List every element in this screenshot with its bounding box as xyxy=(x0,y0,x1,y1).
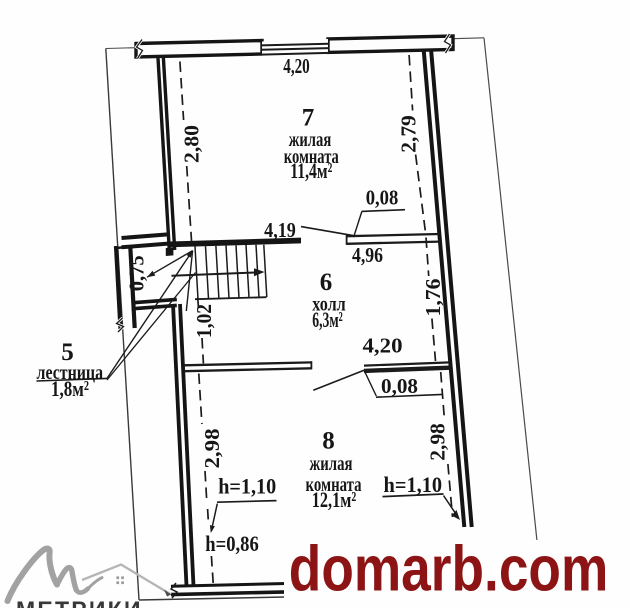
svg-text:8: 8 xyxy=(322,427,335,454)
svg-text:4,20: 4,20 xyxy=(283,54,310,78)
svg-text:МЕТРИКИ: МЕТРИКИ xyxy=(16,597,143,608)
svg-text:0,08: 0,08 xyxy=(366,186,399,210)
svg-text:4,20: 4,20 xyxy=(363,334,403,358)
svg-text:domarb.com: domarb.com xyxy=(289,534,608,605)
svg-text:12,1м²: 12,1м² xyxy=(312,487,357,512)
svg-text:1,8м²: 1,8м² xyxy=(51,376,89,401)
svg-text:0,08: 0,08 xyxy=(381,374,418,398)
svg-text:h=1,10: h=1,10 xyxy=(218,474,276,499)
svg-text:2,98: 2,98 xyxy=(200,429,224,469)
svg-text:h=1,10: h=1,10 xyxy=(384,472,443,497)
svg-text:2,80: 2,80 xyxy=(180,125,204,163)
svg-text:0,75: 0,75 xyxy=(125,255,149,291)
svg-text:11,4м²: 11,4м² xyxy=(290,158,332,183)
svg-text:1,76: 1,76 xyxy=(421,279,445,317)
svg-text:1,02: 1,02 xyxy=(192,304,216,338)
svg-text:4,19: 4,19 xyxy=(264,218,296,242)
svg-text:6,3м²: 6,3м² xyxy=(312,307,343,332)
svg-text:6: 6 xyxy=(320,269,333,296)
svg-text:4,96: 4,96 xyxy=(352,243,383,267)
svg-text:жилая: жилая xyxy=(310,453,353,475)
svg-text:2,98: 2,98 xyxy=(426,423,450,461)
svg-text:h=0,86: h=0,86 xyxy=(205,531,259,556)
svg-text:2,79: 2,79 xyxy=(397,115,421,153)
svg-text:7: 7 xyxy=(302,105,315,132)
